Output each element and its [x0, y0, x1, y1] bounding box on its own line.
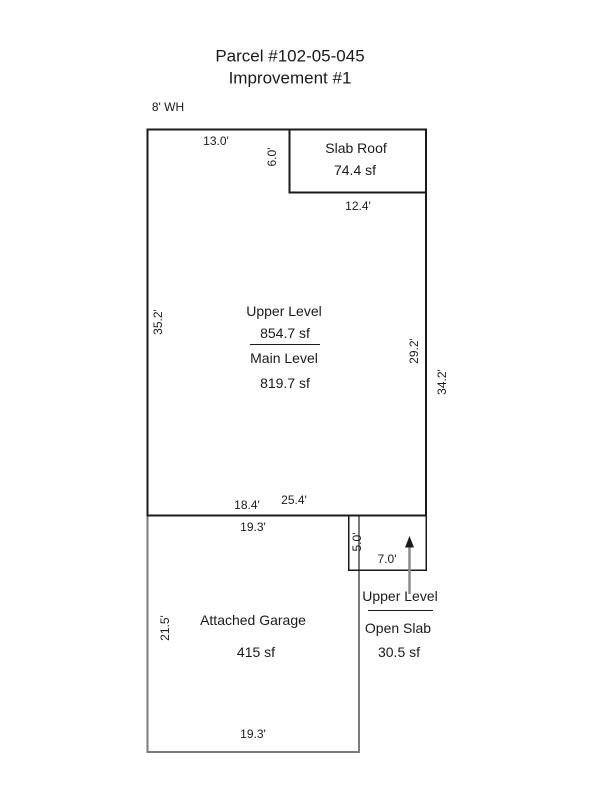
open-slab-dim-width: 7.0' [378, 553, 397, 565]
main-dim-right-inner: 29.2' [408, 338, 420, 364]
slab-roof-outline [290, 130, 427, 193]
garage-dim-left: 21.5' [159, 615, 171, 641]
slab-roof-name: Slab Roof [325, 141, 386, 155]
main-dim-left: 35.2' [152, 309, 164, 335]
wall-height-label: 8' WH [152, 101, 184, 113]
garage-dim-bottom: 19.3' [240, 728, 266, 740]
open-slab-callout-line2: Open Slab [365, 621, 431, 635]
main-level-name: Main Level [250, 351, 318, 365]
slab-roof-dim-bottom: 12.4' [345, 200, 371, 212]
garage-name: Attached Garage [200, 613, 306, 627]
garage-area: 415 sf [237, 645, 275, 659]
upper-level-area: 854.7 sf [260, 326, 310, 340]
main-dim-bottom-main: 25.4' [281, 494, 307, 506]
main-building-outline [148, 130, 427, 516]
slab-roof-area: 74.4 sf [334, 163, 376, 177]
arrow-up-icon [405, 536, 414, 548]
open-slab-callout-area: 30.5 sf [378, 645, 420, 659]
garage-outline [148, 516, 360, 753]
garage-dim-top: 19.3' [240, 521, 266, 533]
open-slab-callout-line1: Upper Level [362, 589, 438, 603]
main-level-area: 819.7 sf [260, 376, 310, 390]
page-title-improvement: Improvement #1 [229, 70, 352, 87]
main-dim-right-outer: 34.2' [436, 369, 448, 395]
slab-roof-dim-height: 6.0' [266, 148, 278, 167]
sketch-drawing [0, 0, 600, 800]
parcel-sketch-page: Parcel #102-05-045 Improvement #1 8' WH … [0, 0, 600, 800]
main-dim-top: 13.0' [203, 135, 229, 147]
page-title-parcel: Parcel #102-05-045 [215, 48, 364, 65]
open-slab-dim-height: 5.0' [351, 533, 363, 552]
upper-level-name: Upper Level [246, 304, 322, 318]
main-dim-bottom-upper: 18.4' [234, 499, 260, 511]
